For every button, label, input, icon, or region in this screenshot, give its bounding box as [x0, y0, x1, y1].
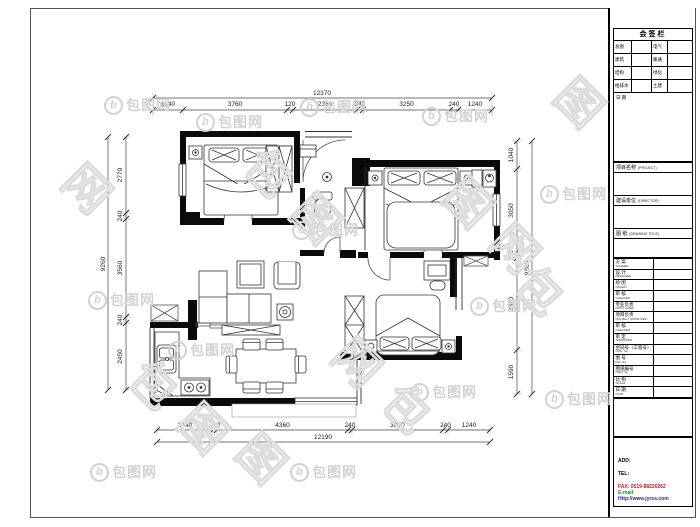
signature-row: 项目负责PROJECT APPROVED	[614, 312, 692, 323]
sign-bar-row: 建筑暖通	[614, 54, 692, 67]
client-value	[614, 206, 692, 229]
sign-bar-grid: 总图电气建筑暖通结构绿化给排水土建	[614, 41, 692, 93]
sign-bar-row: 总图电气	[614, 41, 692, 54]
sign-bar-row: 结构绿化	[614, 67, 692, 80]
signature-row: 绘 图DRAWN	[614, 280, 692, 291]
project-value	[614, 173, 692, 196]
sign-bar-row: 给排水土建	[614, 80, 692, 93]
sign-bar-box: 会签栏 总图电气建筑暖通结构绿化给排水土建 日 期	[613, 28, 693, 162]
client-label: 建设单位(DIRECTOR)	[614, 196, 692, 206]
sign-bar-title: 会签栏	[614, 29, 692, 41]
sign-bar-date-label: 日 期	[614, 93, 692, 101]
signature-row: 审 核CHECKED	[614, 291, 692, 302]
signature-row: 审 定APPROVED	[614, 334, 692, 345]
project-label: 项目名称(PROJECT)	[614, 163, 692, 173]
signature-row: 图 号FIG. No.	[614, 355, 692, 366]
address-label: ADD:	[618, 458, 689, 464]
signature-row: 合同号（工程号）CON. No.	[614, 345, 692, 356]
website-line: Http://www.jyrss.com	[618, 496, 689, 502]
signature-row: 图纸编号DWG No.	[614, 366, 692, 377]
titleblock-wrap: 会签栏 总图电气建筑暖通结构绿化给排水土建 日 期 项目名称(PROJECT) …	[30, 8, 696, 518]
contact-box: ADD: TEL: FAX: 0519-88226262 E-mail: Htt…	[613, 437, 693, 507]
drawing-label: 图 纸(DRAWING TITLE)	[614, 229, 692, 239]
signature-row: 方 案SCHEME	[614, 259, 692, 270]
empty-box	[613, 398, 693, 437]
signature-rows-box: 方 案SCHEME设 计DESIGNED绘 图DRAWN审 核CHECKED专业…	[613, 258, 693, 398]
title-block: 会签栏 总图电气建筑暖通结构绿化给排水土建 日 期 项目名称(PROJECT) …	[608, 8, 695, 517]
page: { "watermark": { "brand": "包图网", "logo_l…	[0, 0, 700, 527]
signature-row: 比 例SCALE	[614, 377, 692, 388]
telephone-label: TEL:	[618, 471, 689, 477]
project-box: 项目名称(PROJECT) 建设单位(DIRECTOR) 图 纸(DRAWING…	[613, 162, 693, 258]
signature-row: 日 期DATE	[614, 387, 692, 397]
signature-row: 专业负责PROJ. CHIEF	[614, 302, 692, 313]
signature-row: 设 计DESIGNED	[614, 270, 692, 281]
signature-row: 审 核CHECKED	[614, 323, 692, 334]
